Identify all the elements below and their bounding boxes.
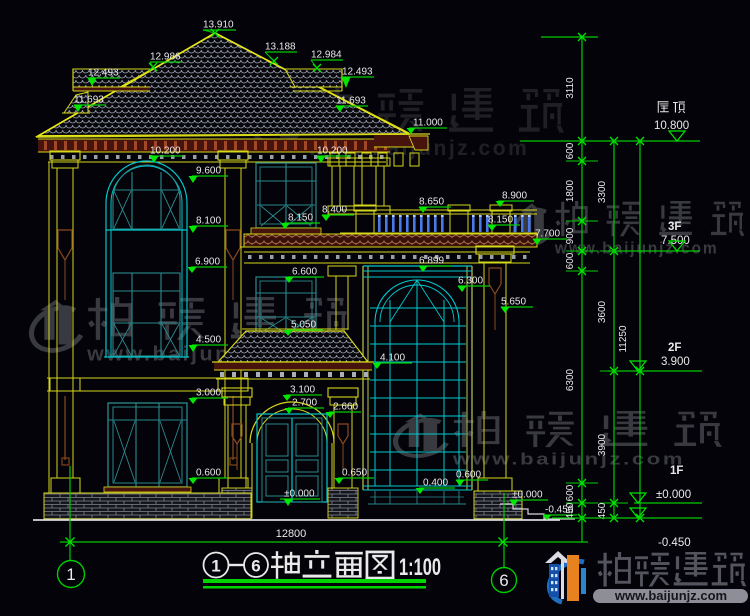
- svg-text:5.650: 5.650: [501, 297, 526, 308]
- svg-text:±0.000: ±0.000: [284, 489, 315, 500]
- svg-text:2F: 2F: [668, 342, 681, 354]
- svg-text:2.660: 2.660: [333, 402, 358, 413]
- svg-text:3.900: 3.900: [661, 356, 690, 368]
- svg-text:www.baijunjz.com: www.baijunjz.com: [614, 588, 727, 603]
- svg-text:1800: 1800: [565, 179, 576, 202]
- svg-text:900: 900: [565, 227, 576, 244]
- svg-text:0.400: 0.400: [423, 478, 448, 489]
- svg-text:600: 600: [565, 142, 576, 159]
- svg-text:8.400: 8.400: [322, 205, 347, 216]
- svg-text:12800: 12800: [276, 528, 307, 540]
- svg-text:7.700: 7.700: [535, 229, 560, 240]
- svg-text:600: 600: [565, 252, 576, 269]
- svg-text:6.600: 6.600: [292, 267, 317, 278]
- svg-text:1: 1: [211, 557, 220, 576]
- svg-text:±0.000: ±0.000: [512, 490, 543, 501]
- svg-text:13.188: 13.188: [265, 42, 296, 53]
- svg-text:1:100: 1:100: [399, 554, 441, 581]
- svg-text:0.650: 0.650: [342, 468, 367, 479]
- svg-text:3110: 3110: [565, 77, 576, 99]
- svg-text:2.700: 2.700: [292, 398, 317, 409]
- svg-text:6300: 6300: [565, 368, 576, 391]
- svg-text:12.984: 12.984: [311, 50, 342, 61]
- svg-text:6: 6: [499, 571, 508, 590]
- svg-text:1F: 1F: [670, 465, 683, 477]
- svg-text:1: 1: [66, 565, 75, 584]
- svg-text:12.493: 12.493: [342, 67, 373, 78]
- svg-text:3F: 3F: [668, 221, 681, 233]
- svg-text:3300: 3300: [597, 180, 608, 203]
- svg-text:11.693: 11.693: [74, 95, 104, 106]
- svg-text:8.150: 8.150: [488, 215, 513, 226]
- svg-text:3900: 3900: [597, 433, 608, 456]
- svg-text:11.000: 11.000: [413, 118, 443, 129]
- svg-text:0.600: 0.600: [456, 470, 481, 481]
- svg-text:11250: 11250: [618, 325, 629, 353]
- svg-text:6.899: 6.899: [419, 256, 444, 267]
- svg-text:450: 450: [565, 502, 576, 519]
- svg-text:8.150: 8.150: [288, 213, 313, 224]
- svg-text:12.493: 12.493: [88, 68, 119, 79]
- svg-text:3.000: 3.000: [196, 388, 221, 399]
- svg-text:0.600: 0.600: [196, 468, 221, 479]
- svg-text:6: 6: [251, 557, 260, 576]
- svg-text:5.050: 5.050: [291, 320, 316, 331]
- svg-text:3.100: 3.100: [290, 385, 315, 396]
- svg-text:9.600: 9.600: [196, 166, 221, 177]
- svg-text:10.800: 10.800: [654, 120, 689, 132]
- svg-text:10.200: 10.200: [150, 146, 181, 157]
- svg-text:6.900: 6.900: [195, 257, 220, 268]
- svg-text:3600: 3600: [597, 300, 608, 323]
- svg-text:6.300: 6.300: [458, 276, 483, 287]
- svg-text:600: 600: [565, 484, 576, 501]
- svg-text:10.200: 10.200: [317, 146, 348, 157]
- svg-text:8.100: 8.100: [196, 216, 221, 227]
- svg-text:±0.000: ±0.000: [656, 489, 691, 501]
- svg-text:12.986: 12.986: [150, 52, 181, 63]
- svg-text:-0.450: -0.450: [658, 537, 691, 549]
- svg-text:4.100: 4.100: [380, 353, 405, 364]
- svg-text:450: 450: [597, 502, 608, 519]
- svg-text:11.693: 11.693: [336, 96, 366, 107]
- svg-text:4.500: 4.500: [196, 335, 221, 346]
- svg-text:8.650: 8.650: [419, 197, 444, 208]
- svg-text:8.900: 8.900: [502, 191, 527, 202]
